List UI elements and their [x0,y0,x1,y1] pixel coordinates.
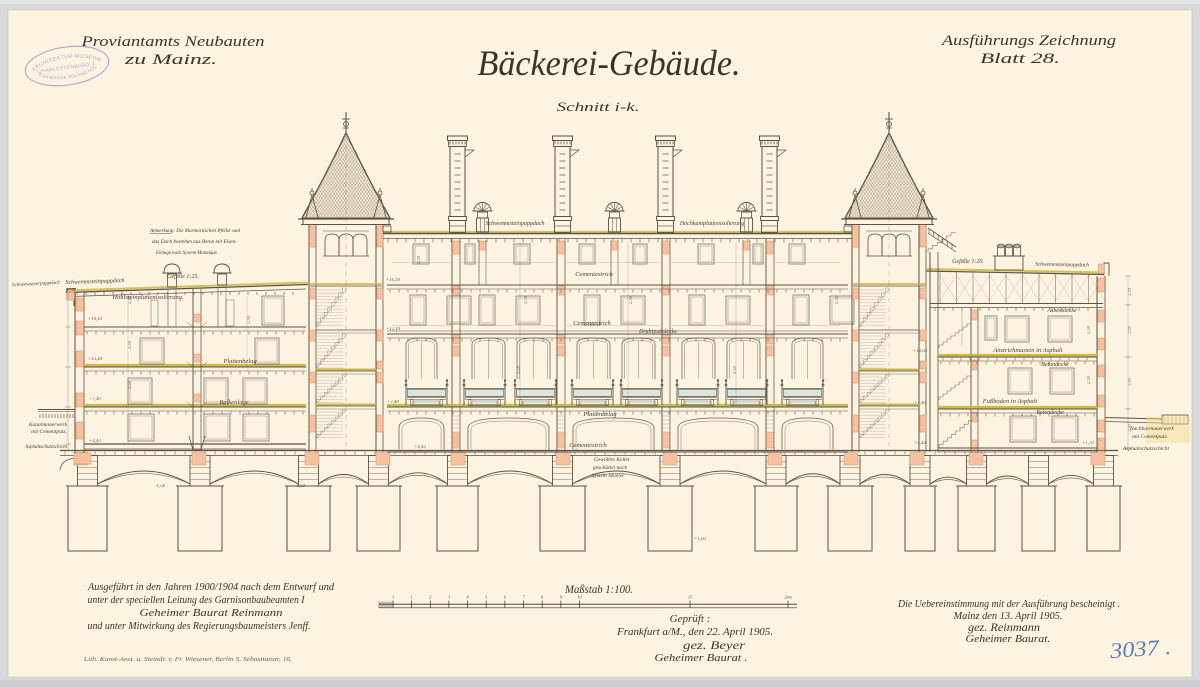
svg-text:Schnitt i-k.: Schnitt i-k. [557,99,640,114]
svg-text:Die Uebereinstimmung mit der A: Die Uebereinstimmung mit der Ausführung … [897,599,1120,610]
svg-text:1: 1 [392,595,394,600]
svg-text:Asphaltschutzschicht: Asphaltschutzschicht [1122,446,1170,452]
svg-text:Asbestdecke: Asbestdecke [1046,308,1077,314]
svg-text:4: 4 [467,595,469,600]
svg-text:Geheimer Baurat .: Geheimer Baurat . [655,653,748,664]
svg-text:+1,70: +1,70 [1082,441,1094,446]
svg-text:Maßstab 1:100.: Maßstab 1:100. [564,582,633,596]
svg-text:2: 2 [429,595,431,600]
svg-text:Ausführungs Zeichnung: Ausführungs Zeichnung [941,33,1117,49]
svg-text:System Monier: System Monier [592,473,626,479]
svg-text:und unter Mitwirkung des Regie: und unter Mitwirkung des Regierungsbaume… [88,621,311,632]
svg-text:Asphaltschutzschicht: Asphaltschutzschicht [24,445,68,450]
svg-text:20m: 20m [784,595,791,600]
svg-text:Anmerkung: Die Marmortischen P: Anmerkung: Die Marmortischen Pfeiler und [149,227,240,234]
svg-text:Lith. Kunst-Anst. u. Steindr.: Lith. Kunst-Anst. u. Steindr. v. Fr. Wie… [83,656,293,663]
svg-text:geschüttet nach: geschüttet nach [593,465,628,471]
svg-text:Geprüft :: Geprüft : [670,613,711,625]
svg-text:+7,40: +7,40 [387,400,399,405]
svg-text:+4,43: +4,43 [89,439,101,444]
svg-text:-1,50: -1,50 [295,484,306,489]
svg-text:3: 3 [448,595,450,600]
svg-text:+13,04: +13,04 [913,349,928,354]
svg-text:Hohlsteinplattenisolierung.: Hohlsteinplattenisolierung. [111,294,184,301]
svg-text:+13,44: +13,44 [88,357,103,362]
svg-text:Schwemmsteinpappdach: Schwemmsteinpappdach [486,221,545,227]
svg-text:+7,40: +7,40 [914,401,926,406]
svg-text:Bäckerei-Gebäude.: Bäckerei-Gebäude. [478,43,741,83]
svg-text:1: 1 [411,595,413,600]
svg-text:zu Mainz.: zu Mainz. [123,52,217,68]
svg-text:Geheimer Baurat.: Geheimer Baurat. [966,634,1051,645]
svg-text:das Dach bestehen aus Beton mi: das Dach bestehen aus Beton mit Eisen- [152,239,237,245]
svg-text:Gefälle 1:20.: Gefälle 1:20. [952,258,984,265]
svg-text:+4,43: +4,43 [914,441,926,446]
svg-text:Ausgeführt in den Jahren 1900/: Ausgeführt in den Jahren 1900/1904 nach … [87,582,335,593]
svg-text:Betondecke: Betondecke [1036,410,1064,416]
svg-text:mit Cementputz.: mit Cementputz. [1132,434,1168,440]
svg-text:Cementestrich: Cementestrich [573,320,611,327]
svg-text:Nachbarmauerwerk: Nachbarmauerwerk [1129,426,1175,432]
svg-text:3037 .: 3037 . [1108,634,1172,663]
svg-text:-1,50: -1,50 [155,484,166,489]
svg-text:+4,43: +4,43 [414,445,426,450]
svg-text:Fußboden in Asphalt: Fußboden in Asphalt [982,398,1038,405]
svg-text:Frankfurt a/M., den 22. April: Frankfurt a/M., den 22. April 1905. [616,627,773,638]
svg-text:+12,10: +12,10 [386,327,401,332]
svg-text:15: 15 [688,595,692,600]
svg-text:+16,10: +16,10 [386,278,401,283]
svg-text:mit Cementputz,: mit Cementputz, [31,429,67,435]
svg-text:+1,50: +1,50 [694,537,706,542]
svg-text:Plattenbelag: Plattenbelag [582,411,617,418]
svg-text:Hochkantplattenisolierung: Hochkantplattenisolierung [679,221,744,227]
svg-text:Cementestrich: Cementestrich [575,271,613,278]
svg-text:+10,10: +10,10 [88,317,103,322]
svg-text:Einlage nach System Monnique.: Einlage nach System Monnique. [155,250,218,256]
svg-text:5: 5 [485,595,487,600]
svg-text:Gefälle 1:25.: Gefälle 1:25. [167,273,199,280]
svg-text:Balkenlage: Balkenlage [219,399,248,406]
svg-text:Cementestrich: Cementestrich [569,442,607,449]
svg-text:Drahtputzdecke: Drahtputzdecke [638,329,677,335]
svg-text:Schwemmsteinpappdach: Schwemmsteinpappdach [1035,262,1089,269]
svg-text:Geheimer Baurat Reinmann: Geheimer Baurat Reinmann [140,608,283,619]
svg-text:gez. Reinmann: gez. Reinmann [968,620,1040,634]
svg-text:unter der speciellen Leitung d: unter der speciellen Leitung des Garniso… [88,595,306,606]
svg-text:Gewölbte Keller: Gewölbte Keller [594,457,631,463]
svg-text:gez. Beyer: gez. Beyer [683,638,745,652]
svg-text:+7,40: +7,40 [89,397,101,402]
svg-text:Anstrichmassen in Asphalt: Anstrichmassen in Asphalt [992,347,1062,354]
svg-text:Proviantamts Neubauten: Proviantamts Neubauten [80,34,264,50]
svg-text:Kanalmauerwerk: Kanalmauerwerk [28,422,68,428]
svg-text:Blatt 28.: Blatt 28. [980,51,1060,67]
svg-text:Plattenbelag: Plattenbelag [222,358,257,365]
svg-text:Betondecke: Betondecke [1041,362,1069,368]
